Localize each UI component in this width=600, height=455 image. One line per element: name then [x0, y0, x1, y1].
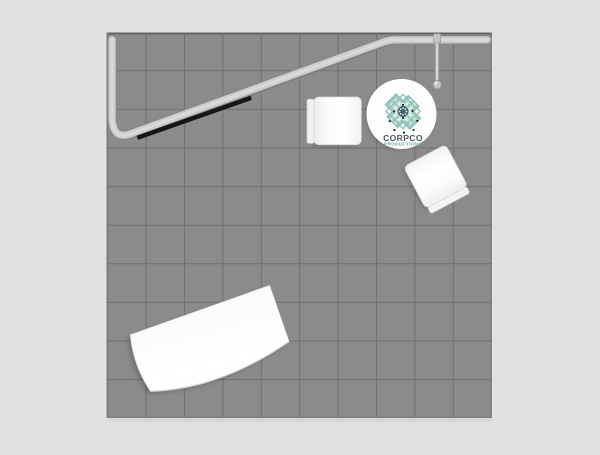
- svg-text:PRODUCTIONS: PRODUCTIONS: [384, 141, 422, 146]
